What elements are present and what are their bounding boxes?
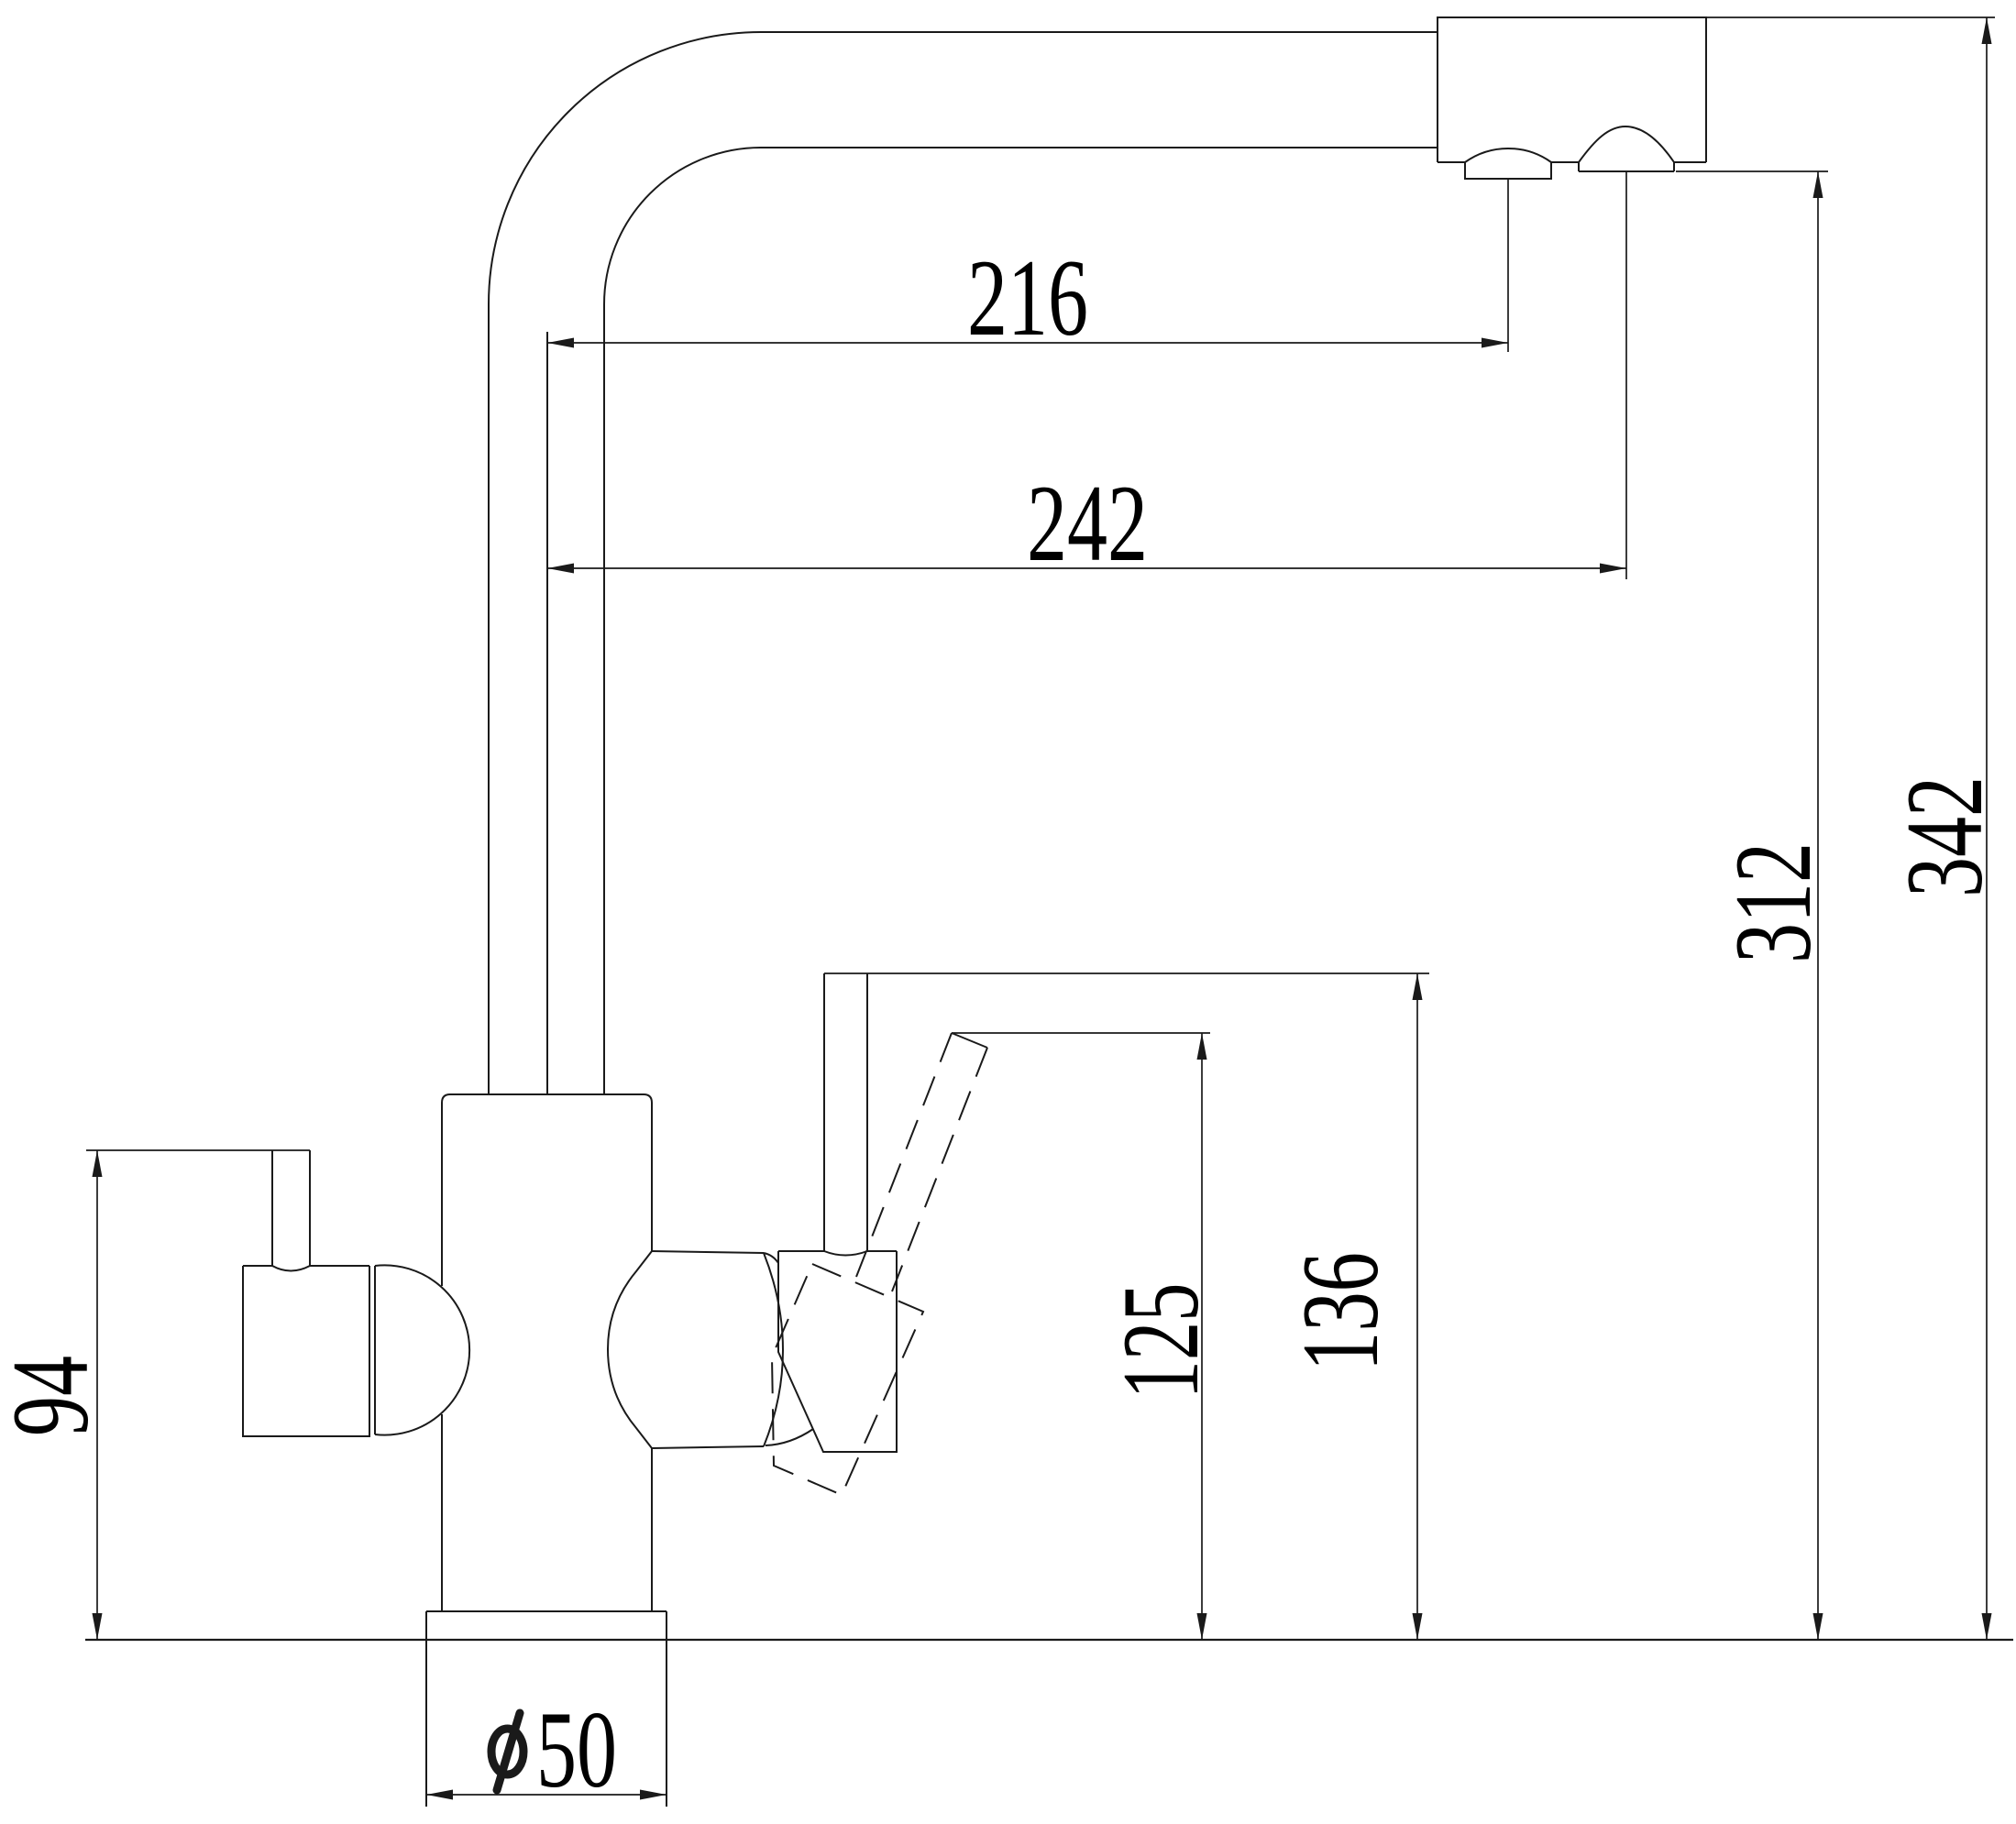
svg-text:312: 312 (1712, 842, 1834, 963)
svg-text:242: 242 (1027, 462, 1148, 584)
svg-text:50: 50 (536, 1688, 617, 1810)
svg-text:94: 94 (0, 1356, 111, 1436)
svg-text:125: 125 (1099, 1283, 1221, 1400)
svg-text:342: 342 (1883, 776, 2005, 897)
svg-text:136: 136 (1279, 1252, 1401, 1371)
svg-text:216: 216 (967, 236, 1088, 358)
